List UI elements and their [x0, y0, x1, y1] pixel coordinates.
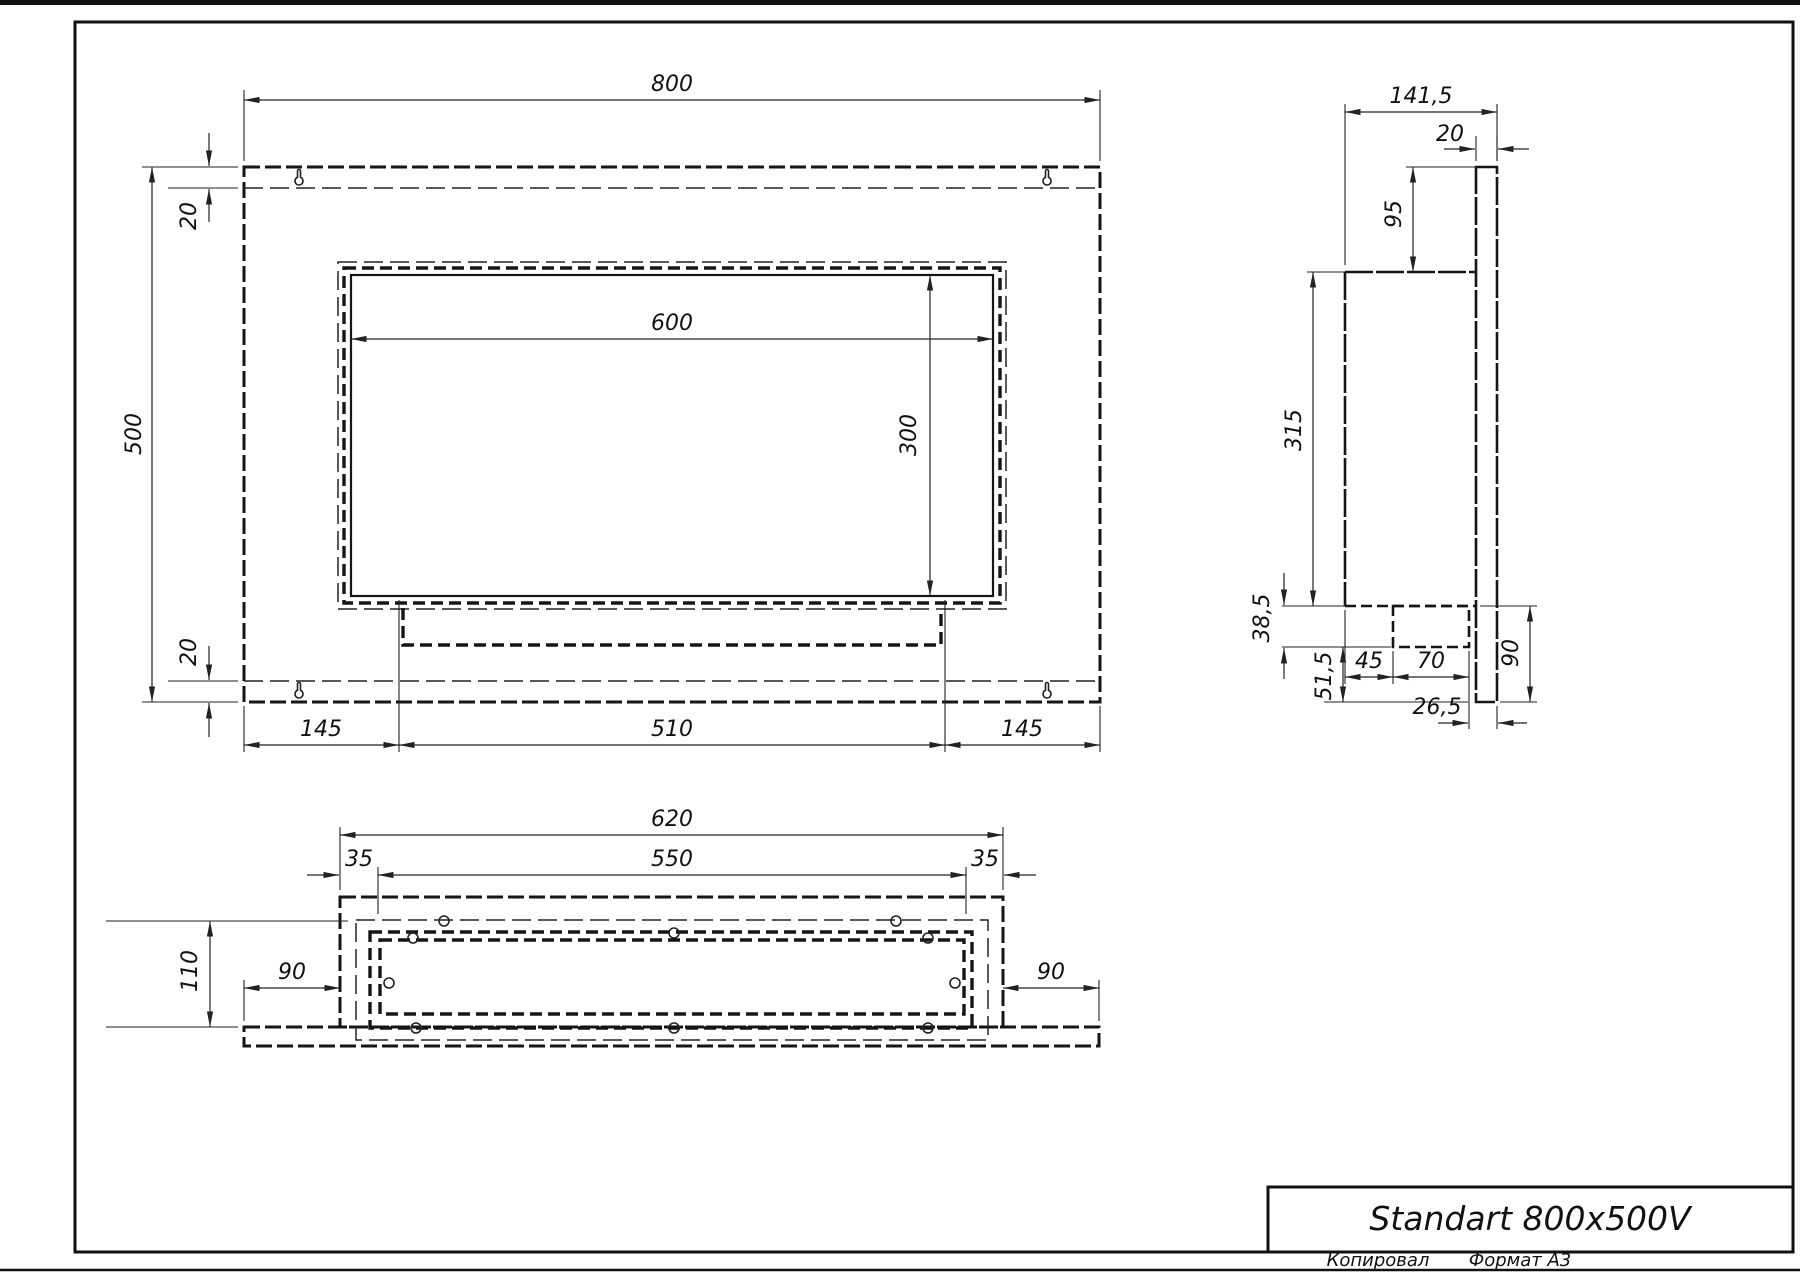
dim-front-tray-width: 510	[651, 717, 693, 742]
dim-side-front-inset: 45	[1355, 649, 1383, 674]
dim-bottom-right-inset: 35	[971, 847, 999, 872]
dim-front-opening-width: 600	[651, 311, 693, 336]
dim-front-left-offset: 145	[300, 717, 342, 742]
dim-front-overall-width: 800	[651, 72, 693, 97]
dim-bottom-inner-width: 550	[651, 847, 693, 872]
dim-bottom-left-inset: 35	[345, 847, 373, 872]
dim-side-overall-depth: 141,5	[1390, 84, 1453, 109]
screw-hole	[408, 933, 418, 943]
front-outer-panel	[244, 167, 1100, 702]
side-view: 141,5 20 95 315 38,5 51,5 45 70	[1250, 84, 1537, 729]
dim-bottom-body-width: 620	[651, 807, 693, 832]
screw-hole	[439, 916, 449, 926]
dim-side-body-height: 315	[1282, 409, 1307, 451]
burner-tray-front	[403, 608, 941, 645]
keyhole-icon	[295, 170, 303, 186]
format-label: Формат А3	[1469, 1250, 1572, 1271]
burner-box-section	[1393, 606, 1469, 647]
title-block: Standart 800x500V Копировал Формат А3	[1268, 1187, 1793, 1271]
drawing-title: Standart 800x500V	[1369, 1199, 1693, 1238]
body-bottom-outline	[340, 897, 1003, 1027]
dim-front-overall-height: 500	[122, 413, 147, 455]
drawing-sheet: 600 300 800 500 20 20 145 510 145	[0, 0, 1800, 1273]
screw-hole	[384, 978, 394, 988]
back-panel-bottom-outline	[244, 1027, 1099, 1046]
bottom-view: 620 35 550 35 110 90 90	[106, 807, 1099, 1046]
dim-side-top-extension: 95	[1382, 200, 1407, 228]
dim-side-back-clearance: 26,5	[1413, 695, 1462, 720]
dim-bottom-overall-depth: 110	[178, 950, 203, 992]
dim-front-top-flange: 20	[177, 202, 202, 230]
keyhole-icon	[1043, 683, 1051, 699]
front-view: 600 300 800 500 20 20 145 510 145	[122, 72, 1100, 752]
dim-side-back-panel-thickness: 20	[1436, 122, 1464, 147]
burner-tray-dashed	[380, 940, 964, 1014]
copied-label: Копировал	[1327, 1250, 1430, 1271]
screw-hole	[950, 978, 960, 988]
keyhole-icon	[295, 683, 303, 699]
dim-front-opening-height: 300	[897, 414, 922, 456]
scan-edge-strip	[0, 0, 1800, 5]
dim-side-burner-depth: 70	[1417, 649, 1445, 674]
keyhole-icon	[1043, 170, 1051, 186]
back-panel-section	[1476, 167, 1497, 702]
dim-side-bottom-clearance: 51,5	[1312, 652, 1337, 701]
dim-bottom-right-extension: 90	[1037, 960, 1065, 985]
dim-side-bottom-extension: 90	[1499, 639, 1524, 667]
border-frame	[75, 22, 1793, 1252]
screw-hole	[891, 916, 901, 926]
dim-side-burner-drop: 38,5	[1250, 594, 1275, 643]
dim-front-bottom-flange: 20	[177, 638, 202, 666]
dim-front-right-offset: 145	[1001, 717, 1043, 742]
dim-bottom-left-extension: 90	[278, 960, 306, 985]
